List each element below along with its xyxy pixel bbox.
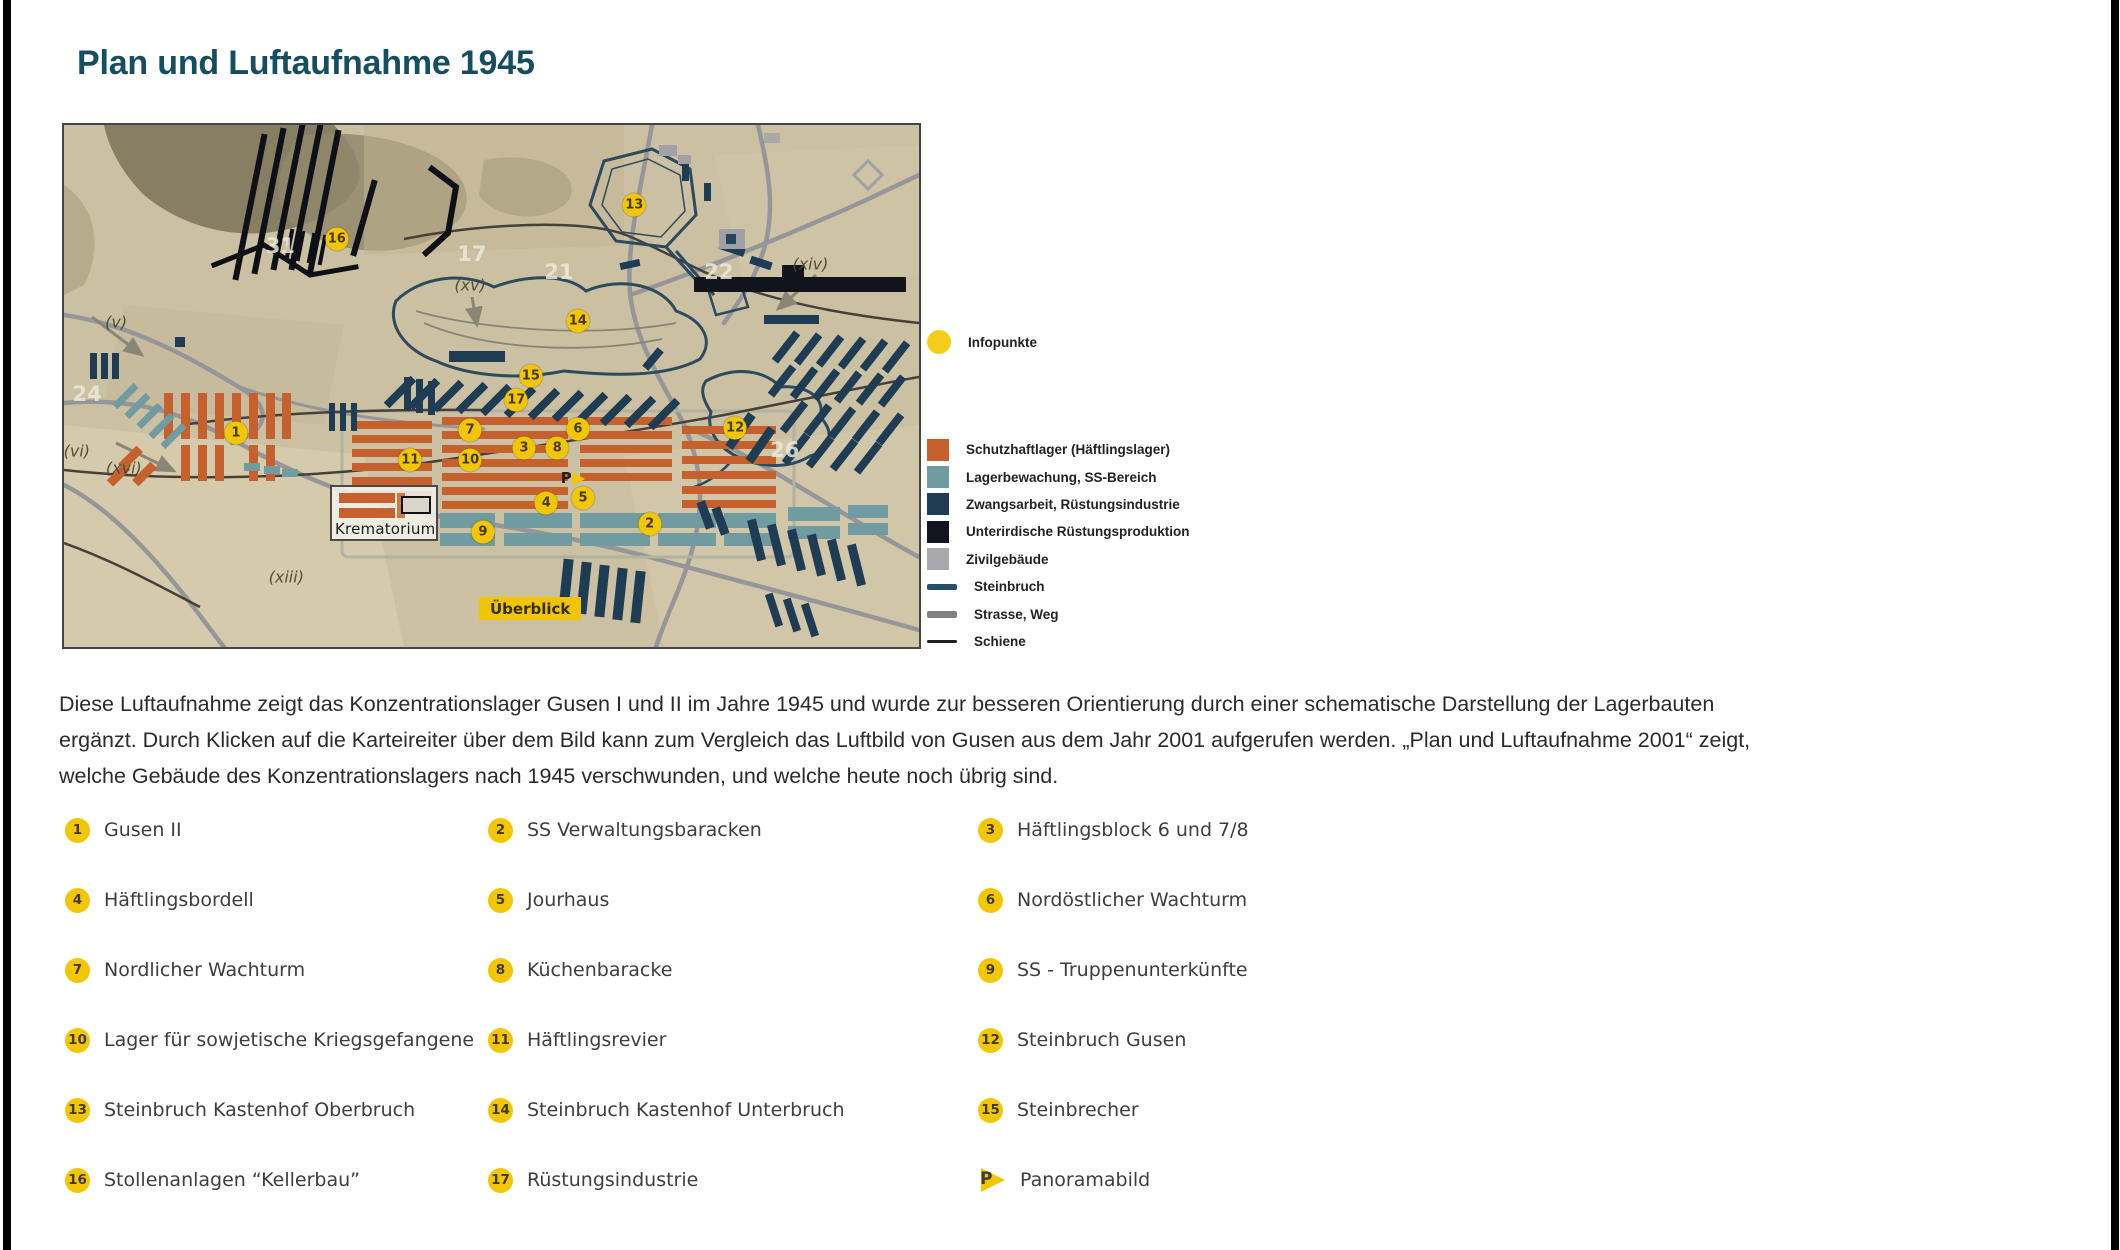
legend-item-label: Unterirdische Rüstungsproduktion [966, 524, 1190, 539]
window-left-edge [3, 0, 11, 1250]
location-item: PPanoramabild [978, 1145, 1598, 1215]
location-item: 10Lager für sowjetische Kriegsgefangene [65, 1005, 488, 1075]
description-line: Diese Luftaufnahme zeigt das Konzentrati… [59, 686, 1750, 722]
legend-item-label: Steinbruch [974, 579, 1045, 594]
legend-item-label: Schiene [974, 634, 1026, 649]
location-label: Stollenanlagen “Kellerbau” [104, 1169, 360, 1191]
location-label: Häftlingsrevier [527, 1029, 666, 1051]
legend-item: Zivilgebäude [927, 546, 1190, 573]
map-infopoint-1[interactable]: 1 [224, 421, 247, 444]
map-infopoint-10[interactable]: 10 [459, 449, 482, 472]
panorama-flag-icon: P [978, 1167, 1006, 1193]
location-label: Steinbrecher [1017, 1099, 1139, 1121]
legend-swatch-square [927, 548, 949, 570]
legend-item: Unterirdische Rüstungsproduktion [927, 518, 1190, 545]
location-label: Gusen II [104, 819, 182, 841]
legend-swatch-line [927, 640, 957, 643]
legend-swatch-line [927, 584, 957, 590]
infopunkte-dot-icon [927, 330, 951, 354]
location-number-badge: 5 [488, 888, 513, 913]
map-infopoint-17[interactable]: 17 [505, 389, 528, 412]
legend-swatch-square [927, 493, 949, 515]
legend-item: Steinbruch [927, 573, 1190, 600]
location-item: 6Nordöstlicher Wachturm [978, 865, 1598, 935]
location-number-badge: 15 [978, 1098, 1003, 1123]
location-number-badge: 3 [978, 818, 1003, 843]
legend-item: Lagerbewachung, SS-Bereich [927, 463, 1190, 490]
location-item: 4Häftlingsbordell [65, 865, 488, 935]
description-paragraph: Diese Luftaufnahme zeigt das Konzentrati… [59, 686, 1750, 794]
location-number-badge: 13 [65, 1098, 90, 1123]
panorama-p-label: P [980, 1169, 992, 1189]
aerial-map-1945: (v)(vi)(xvi)(xiii)(xv)(xiv)172122242631 … [62, 123, 921, 649]
location-number-badge: 9 [978, 958, 1003, 983]
legend-item: Zwangsarbeit, Rüstungsindustrie [927, 491, 1190, 518]
legend-infopunkte-label: Infopunkte [968, 335, 1037, 350]
location-label: SS - Truppenunterkünfte [1017, 959, 1248, 981]
location-label: Lager für sowjetische Kriegsgefangene [104, 1029, 474, 1051]
location-item: 11Häftlingsrevier [488, 1005, 978, 1075]
legend-swatch-square [927, 466, 949, 488]
map-infopoint-2[interactable]: 2 [638, 512, 661, 535]
location-number-badge: 4 [65, 888, 90, 913]
legend-item-label: Schutzhaftlager (Häftlingslager) [966, 442, 1170, 457]
location-item: 13Steinbruch Kastenhof Oberbruch [65, 1075, 488, 1145]
location-number-badge: 8 [488, 958, 513, 983]
location-label: Steinbruch Gusen [1017, 1029, 1186, 1051]
map-infopoint-7[interactable]: 7 [459, 418, 482, 441]
location-label: Nordlicher Wachturm [104, 959, 305, 981]
map-panorama-marker[interactable]: P [561, 469, 585, 489]
map-infopoint-8[interactable]: 8 [546, 437, 569, 460]
map-infopoint-13[interactable]: 13 [623, 193, 646, 216]
location-number-badge: 10 [65, 1028, 90, 1053]
description-line: welche Gebäude des Konzentrationslagers … [59, 758, 1750, 794]
legend-item: Schutzhaftlager (Häftlingslager) [927, 436, 1190, 463]
legend-item-label: Zivilgebäude [966, 552, 1049, 567]
location-label: Nordöstlicher Wachturm [1017, 889, 1247, 911]
panorama-p-label: P [561, 469, 572, 487]
window-right-edge [2111, 0, 2119, 1250]
location-item: 12Steinbruch Gusen [978, 1005, 1598, 1075]
map-infopoint-12[interactable]: 12 [724, 416, 747, 439]
location-label: Steinbruch Kastenhof Unterbruch [527, 1099, 845, 1121]
location-number-badge: 12 [978, 1028, 1003, 1053]
location-number-badge: 6 [978, 888, 1003, 913]
location-item: 5Jourhaus [488, 865, 978, 935]
page-title: Plan und Luftaufnahme 1945 [77, 44, 535, 83]
location-item: 1Gusen II [65, 795, 488, 865]
map-infopoint-5[interactable]: 5 [571, 487, 594, 510]
location-item: 2SS Verwaltungsbaracken [488, 795, 978, 865]
location-label: Häftlingsblock 6 und 7/8 [1017, 819, 1249, 841]
map-infopoint-6[interactable]: 6 [566, 417, 589, 440]
location-number-badge: 2 [488, 818, 513, 843]
legend-swatch-square [927, 521, 949, 543]
location-label: Jourhaus [527, 889, 609, 911]
map-infopoint-15[interactable]: 15 [519, 365, 542, 388]
location-item: 15Steinbrecher [978, 1075, 1598, 1145]
location-number-badge: 14 [488, 1098, 513, 1123]
map-infopoint-11[interactable]: 11 [399, 449, 422, 472]
location-number-badge: 11 [488, 1028, 513, 1053]
location-label: Häftlingsbordell [104, 889, 254, 911]
map-infopoint-4[interactable]: 4 [535, 491, 558, 514]
legend-items: Schutzhaftlager (Häftlingslager)Lagerbew… [927, 436, 1190, 655]
location-item: 8Küchenbaracke [488, 935, 978, 1005]
location-item: 14Steinbruch Kastenhof Unterbruch [488, 1075, 978, 1145]
location-number-badge: 16 [65, 1168, 90, 1193]
legend-infopunkte: Infopunkte [927, 330, 1037, 354]
legend-item-label: Lagerbewachung, SS-Bereich [966, 470, 1157, 485]
location-item: 16Stollenanlagen “Kellerbau” [65, 1145, 488, 1215]
map-infopoint-3[interactable]: 3 [512, 437, 535, 460]
map-markers-layer: 1234567891011121314151617P [64, 125, 919, 647]
page: { "page": { "title": "Plan und Luftaufna… [0, 0, 2120, 1250]
map-infopoint-16[interactable]: 16 [325, 227, 348, 250]
legend-swatch-line [927, 611, 957, 618]
panorama-flag-icon [572, 472, 585, 486]
location-number-badge: 17 [488, 1168, 513, 1193]
location-label: Küchenbaracke [527, 959, 672, 981]
location-label: Steinbruch Kastenhof Oberbruch [104, 1099, 415, 1121]
legend-item: Schiene [927, 628, 1190, 655]
map-infopoint-14[interactable]: 14 [566, 309, 589, 332]
location-number-badge: 1 [65, 818, 90, 843]
locations-list: 1Gusen II2SS Verwaltungsbaracken3Häftlin… [65, 795, 1598, 1215]
location-label: Panoramabild [1020, 1169, 1150, 1191]
legend-swatch-square [927, 439, 949, 461]
location-number-badge: 7 [65, 958, 90, 983]
legend-item-label: Zwangsarbeit, Rüstungsindustrie [966, 497, 1180, 512]
location-item: 7Nordlicher Wachturm [65, 935, 488, 1005]
map-legend: Infopunkte Schutzhaftlager (Häftlingslag… [925, 123, 1265, 645]
location-item: 17Rüstungsindustrie [488, 1145, 978, 1215]
location-item: 9SS - Truppenunterkünfte [978, 935, 1598, 1005]
legend-item: Strasse, Weg [927, 600, 1190, 627]
location-item: 3Häftlingsblock 6 und 7/8 [978, 795, 1598, 865]
location-label: SS Verwaltungsbaracken [527, 819, 762, 841]
legend-item-label: Strasse, Weg [974, 607, 1059, 622]
description-line: ergänzt. Durch Klicken auf die Karteirei… [59, 722, 1750, 758]
location-label: Rüstungsindustrie [527, 1169, 698, 1191]
map-infopoint-9[interactable]: 9 [471, 521, 494, 544]
